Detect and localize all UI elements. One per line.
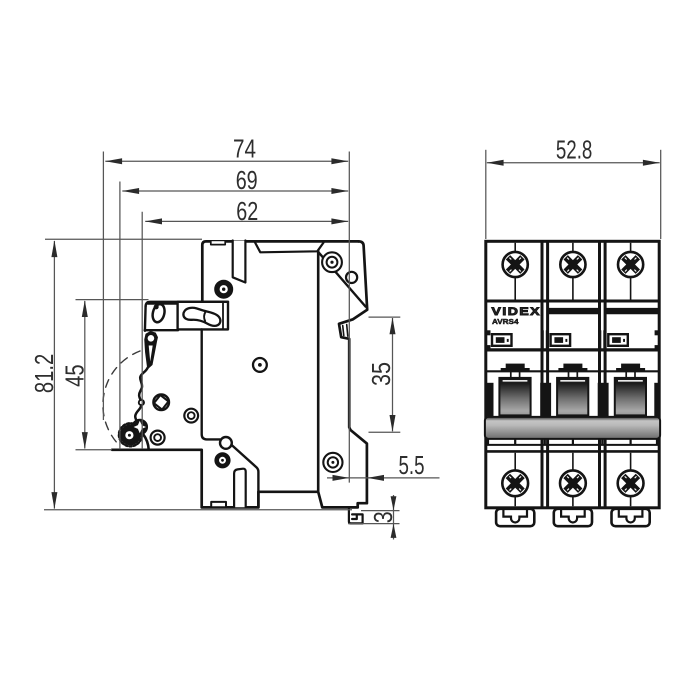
- svg-text:5.5: 5.5: [399, 452, 425, 480]
- svg-text:69: 69: [236, 167, 258, 195]
- svg-text:52.8: 52.8: [556, 136, 593, 164]
- svg-text:3: 3: [370, 511, 398, 523]
- svg-text:VIDEX: VIDEX: [492, 306, 542, 318]
- svg-text:62: 62: [236, 198, 258, 226]
- svg-text:45: 45: [61, 364, 89, 387]
- svg-text:81.2: 81.2: [31, 354, 59, 394]
- svg-text:35: 35: [368, 362, 396, 386]
- svg-text:74: 74: [233, 135, 256, 163]
- svg-text:AVRS4: AVRS4: [492, 317, 519, 326]
